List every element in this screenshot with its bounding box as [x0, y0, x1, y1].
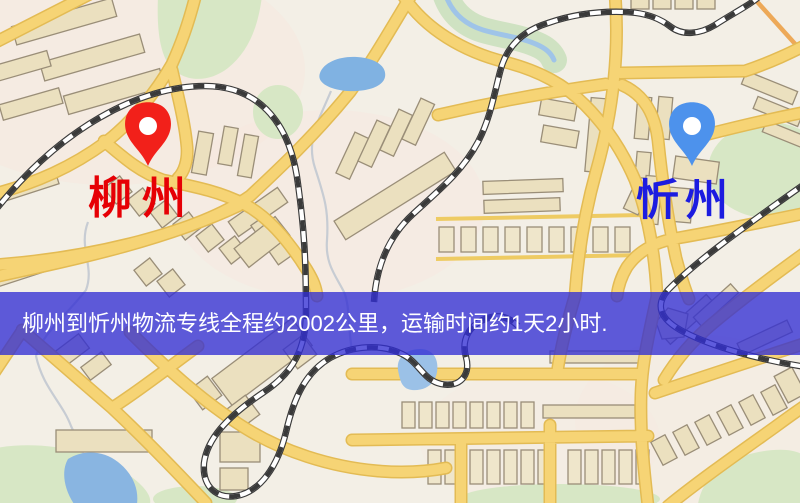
map-screenshot: 柳州到忻州物流专线全程约2002公里，运输时间约1天2小时. 柳州 忻州: [0, 0, 800, 503]
destination-pin-hole: [683, 117, 701, 135]
origin-pin[interactable]: [122, 102, 174, 168]
origin-pin-hole: [139, 117, 157, 135]
route-info-text: 柳州到忻州物流专线全程约2002公里，运输时间约1天2小时.: [22, 313, 608, 335]
map-canvas[interactable]: [0, 0, 800, 503]
destination-pin[interactable]: [666, 102, 718, 168]
origin-city-label: 柳州: [88, 177, 196, 221]
destination-city-label: 忻州: [636, 180, 734, 223]
route-info-banner: 柳州到忻州物流专线全程约2002公里，运输时间约1天2小时.: [0, 292, 800, 355]
